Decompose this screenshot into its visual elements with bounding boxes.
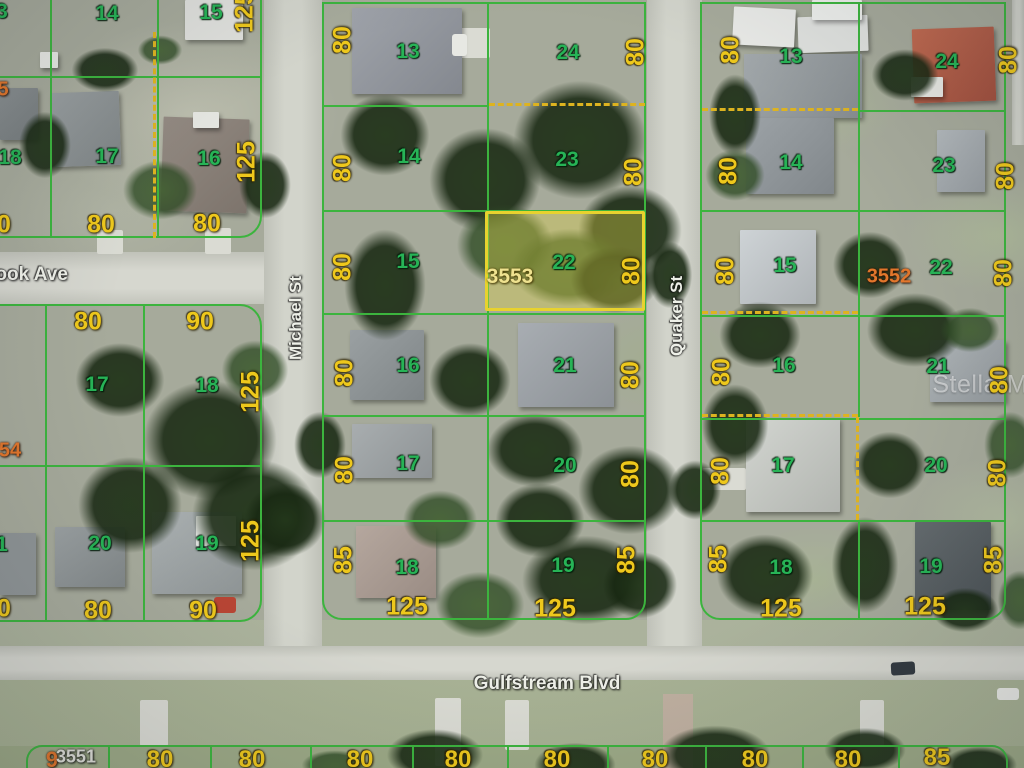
lot-number-label: 20 bbox=[553, 454, 576, 478]
dimension-label: 80 bbox=[835, 746, 862, 768]
lot-number-label: 19 bbox=[551, 554, 574, 578]
lot-number-label: 1 bbox=[0, 533, 8, 557]
lot-number-label: 15 bbox=[773, 254, 796, 278]
dimension-label: 80 bbox=[347, 746, 374, 768]
dimension-label: 90 bbox=[186, 308, 214, 337]
street-name-label: Michael St bbox=[286, 276, 306, 360]
street-name-label: rook Ave bbox=[0, 264, 68, 286]
lot-number-label: 16 bbox=[197, 147, 220, 171]
dimension-label: 0 bbox=[0, 211, 11, 240]
dimension-label: 125 bbox=[237, 520, 266, 562]
lot-number-label: 19 bbox=[195, 532, 218, 556]
dimension-label: 80 bbox=[544, 746, 571, 768]
dimension-label: 85 bbox=[330, 546, 359, 574]
dimension-label: 125 bbox=[760, 595, 802, 624]
dimension-label: 85 bbox=[705, 545, 734, 573]
dimension-label: 125 bbox=[534, 595, 576, 624]
lot-number-label: 13 bbox=[396, 40, 419, 64]
dimension-label: 80 bbox=[708, 358, 737, 386]
dimension-label: 125 bbox=[237, 371, 266, 413]
dimension-label: 80 bbox=[984, 459, 1013, 487]
dimension-label: 80 bbox=[74, 308, 102, 337]
dimension-label: 80 bbox=[995, 46, 1024, 74]
lot-number-label: 23 bbox=[555, 148, 578, 172]
lot-number-label: 3 bbox=[0, 0, 8, 24]
lot-number-label: 16 bbox=[772, 354, 795, 378]
parcel-id-label: 3552 bbox=[867, 266, 912, 289]
lot-number-label: 14 bbox=[397, 145, 420, 169]
lot-number-label: 15 bbox=[396, 250, 419, 274]
dimension-label: 80 bbox=[620, 158, 649, 186]
label-layer: Michael St Quaker St rook Ave Gulfstream… bbox=[0, 0, 1024, 768]
dimension-label: 80 bbox=[329, 26, 358, 54]
lot-number-label: 21 bbox=[553, 354, 576, 378]
parcel-id-label: 54 bbox=[0, 440, 21, 463]
parcel-id-label: 5 bbox=[0, 79, 9, 102]
dimension-label: 125 bbox=[231, 0, 260, 33]
lot-number-label: 18 bbox=[195, 374, 218, 398]
dimension-label: 80 bbox=[622, 38, 651, 66]
lot-number-label: 17 bbox=[85, 373, 108, 397]
subject-parcel-id-label: 3553 bbox=[487, 265, 534, 289]
lot-number-label: 17 bbox=[95, 145, 118, 169]
dimension-label: 80 bbox=[84, 597, 112, 626]
lot-number-label: 15 bbox=[199, 1, 222, 25]
dimension-label: 80 bbox=[329, 253, 358, 281]
lot-number-label: 22 bbox=[929, 256, 952, 280]
dimension-label: 125 bbox=[386, 593, 428, 622]
lot-number-label: 19 bbox=[919, 555, 942, 579]
lot-number-label: 24 bbox=[556, 41, 579, 65]
dimension-label: 80 bbox=[642, 746, 669, 768]
street-name-label: Quaker St bbox=[667, 276, 687, 356]
dimension-label: 80 bbox=[239, 746, 266, 768]
lot-number-label: 21 bbox=[926, 355, 949, 379]
dimension-label: 80 bbox=[990, 259, 1019, 287]
lot-number-label: 23 bbox=[932, 154, 955, 178]
lot-number-label: 22 bbox=[552, 251, 575, 275]
dimension-label: 80 bbox=[717, 36, 746, 64]
lot-number-label: 17 bbox=[771, 454, 794, 478]
street-name-label: Gulfstream Blvd bbox=[474, 673, 621, 695]
lot-number-label: 18 bbox=[395, 556, 418, 580]
dimension-label: 85 bbox=[924, 744, 951, 768]
dimension-label: 80 bbox=[707, 457, 736, 485]
dimension-label: 80 bbox=[329, 154, 358, 182]
lot-number-label: 13 bbox=[779, 45, 802, 69]
dimension-label: 85 bbox=[980, 546, 1009, 574]
lot-number-label: 18 bbox=[0, 146, 22, 170]
lot-number-label: 16 bbox=[396, 354, 419, 378]
plat-map-image: Michael St Quaker St rook Ave Gulfstream… bbox=[0, 0, 1024, 768]
dimension-label: 80 bbox=[147, 746, 174, 768]
dimension-label: 80 bbox=[618, 257, 647, 285]
dimension-label: 80 bbox=[331, 456, 360, 484]
dimension-label: 80 bbox=[992, 162, 1021, 190]
dimension-label: 125 bbox=[233, 141, 262, 183]
dimension-label: 0 bbox=[0, 595, 11, 624]
lot-number-label: 24 bbox=[935, 50, 958, 74]
dimension-label: 125 bbox=[904, 593, 946, 622]
dimension-label: 80 bbox=[715, 157, 744, 185]
dimension-label: 80 bbox=[193, 210, 221, 239]
parcel-id-label: 3551 bbox=[56, 747, 96, 768]
lot-number-label: 17 bbox=[396, 452, 419, 476]
dimension-label: 90 bbox=[189, 597, 217, 626]
dimension-label: 80 bbox=[712, 257, 741, 285]
lot-number-label: 14 bbox=[95, 2, 118, 26]
lot-number-label: 14 bbox=[779, 151, 802, 175]
lot-number-label: 20 bbox=[924, 454, 947, 478]
lot-number-label: 20 bbox=[88, 532, 111, 556]
dimension-label: 80 bbox=[331, 359, 360, 387]
dimension-label: 80 bbox=[87, 211, 115, 240]
dimension-label: 80 bbox=[617, 460, 646, 488]
dimension-label: 85 bbox=[613, 546, 642, 574]
dimension-label: 80 bbox=[617, 361, 646, 389]
dimension-label: 80 bbox=[986, 366, 1015, 394]
lot-number-label: 18 bbox=[769, 556, 792, 580]
dimension-label: 80 bbox=[445, 746, 472, 768]
dimension-label: 80 bbox=[742, 746, 769, 768]
